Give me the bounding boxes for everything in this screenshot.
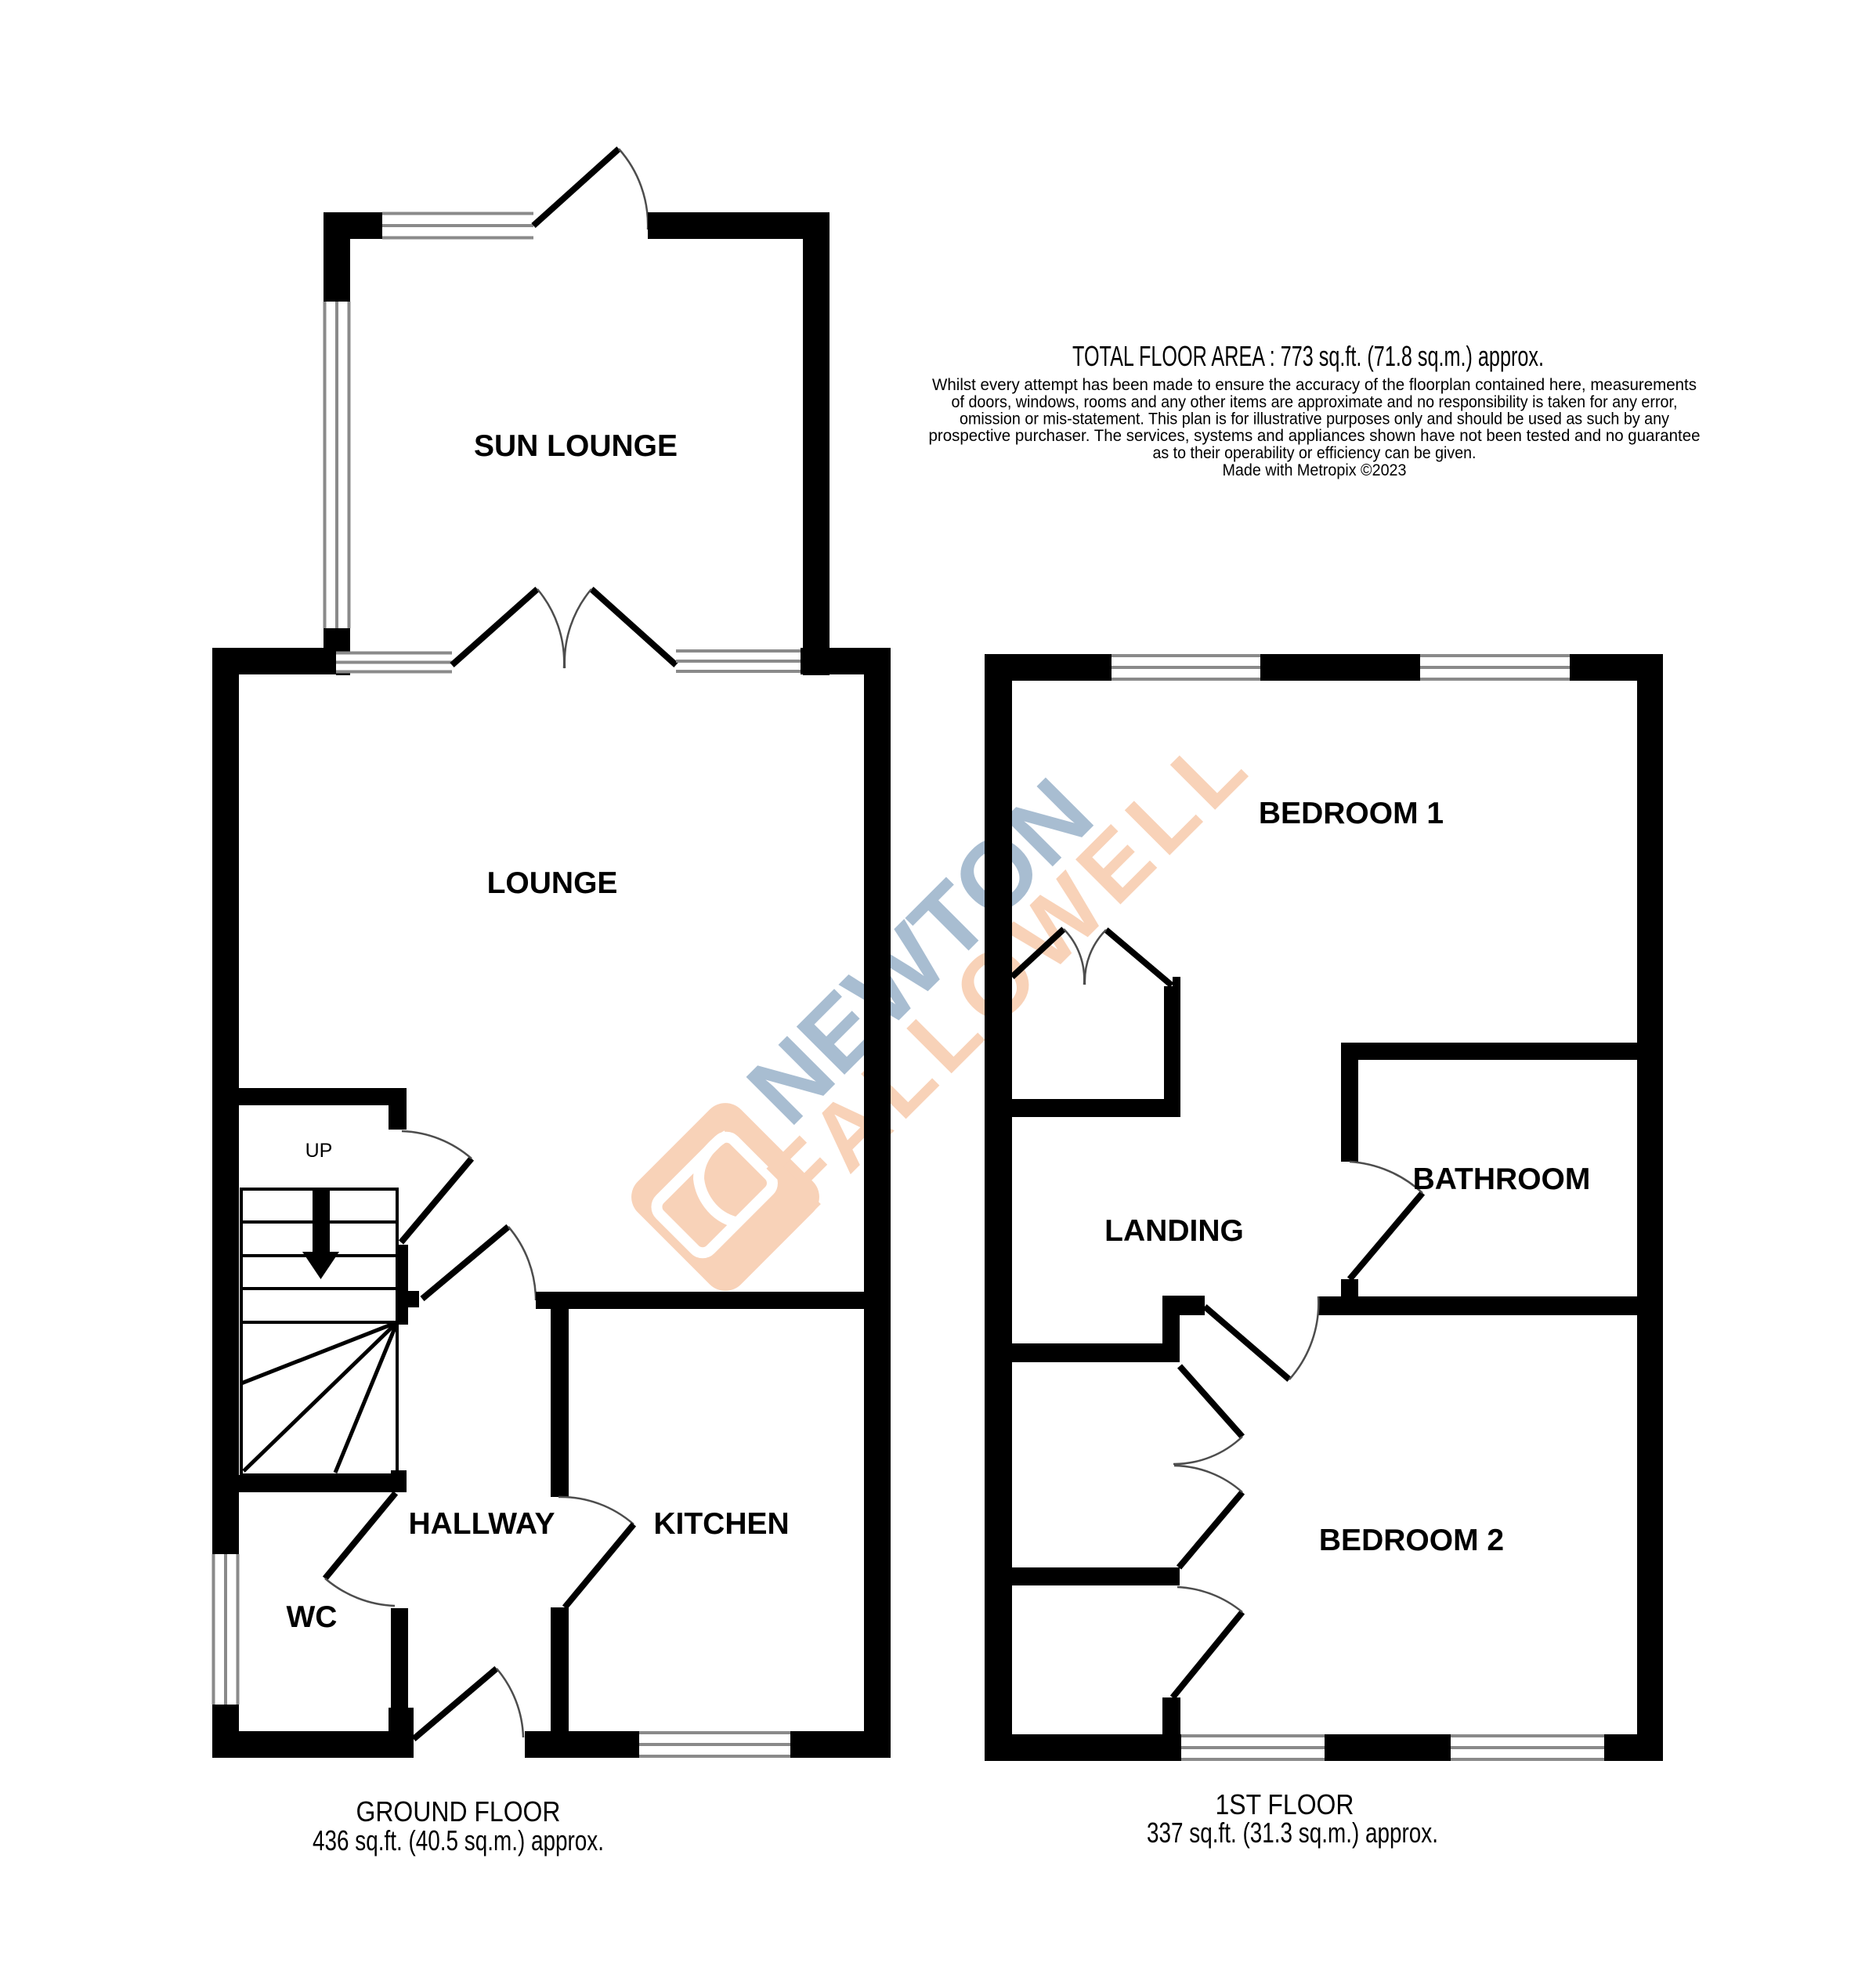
svg-text:436 sq.ft. (40.5 sq.m.) approx: 436 sq.ft. (40.5 sq.m.) approx. [313,1824,604,1856]
svg-text:of doors, windows, rooms and a: of doors, windows, rooms and any other i… [952,392,1678,411]
svg-text:prospective purchaser. The ser: prospective purchaser. The services, sys… [929,426,1701,445]
svg-text:SUN LOUNGE: SUN LOUNGE [474,429,678,463]
svg-text:as to their operability or eff: as to their operability or efficiency ca… [1153,443,1477,462]
svg-text:HALLWAY: HALLWAY [408,1507,555,1541]
svg-text:LANDING: LANDING [1104,1214,1244,1248]
svg-text:GROUND FLOOR: GROUND FLOOR [356,1795,561,1828]
svg-text:LOUNGE: LOUNGE [487,866,618,900]
svg-text:KITCHEN: KITCHEN [653,1507,789,1541]
svg-text:1ST FLOOR: 1ST FLOOR [1216,1788,1354,1820]
svg-text:omission or mis-statement. Thi: omission or mis-statement. This plan is … [960,410,1669,428]
svg-text:BEDROOM 2: BEDROOM 2 [1319,1524,1504,1557]
svg-text:Whilst every attempt has been: Whilst every attempt has been made to en… [932,375,1697,394]
svg-text:TOTAL FLOOR AREA : 773 sq.ft.: TOTAL FLOOR AREA : 773 sq.ft. (71.8 sq.m… [1072,340,1544,372]
svg-text:337 sq.ft. (31.3 sq.m.) approx: 337 sq.ft. (31.3 sq.m.) approx. [1147,1817,1438,1849]
svg-text:BEDROOM 1: BEDROOM 1 [1259,797,1444,830]
svg-text:Made with Metropix ©2023: Made with Metropix ©2023 [1223,461,1407,479]
svg-text:WC: WC [287,1600,338,1634]
svg-text:BATHROOM: BATHROOM [1413,1162,1591,1196]
svg-text:UP: UP [305,1140,333,1162]
